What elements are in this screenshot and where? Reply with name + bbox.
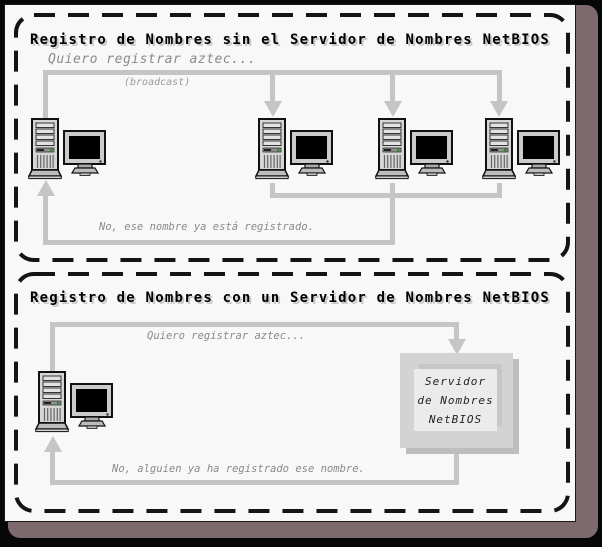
top-panel-title: Registro de Nombres sin el Servidor de N… (14, 31, 566, 49)
send-vertical-bottom (50, 322, 55, 375)
bottom-request-message: Quiero registrar aztec... (147, 330, 305, 342)
arrowhead-down-2 (384, 101, 402, 117)
broadcast-label: (broadcast) (124, 77, 190, 88)
server-label-line3: NetBIOS (429, 410, 482, 429)
computer-icon (375, 117, 455, 187)
flow-line-send-vertical-left (43, 70, 48, 122)
flow-line-drop-2 (390, 75, 395, 101)
computer-icon (255, 117, 335, 187)
computer-icon (482, 117, 562, 187)
reply-drop-vertical (390, 198, 395, 242)
reply-return-vertical (43, 196, 48, 245)
send-horizontal-bottom (50, 322, 459, 327)
reply-return-horizontal (43, 240, 395, 245)
send-drop-to-server (454, 327, 459, 339)
server-label-line2: de Nombres (417, 391, 493, 410)
arrowhead-down-1 (264, 101, 282, 117)
reply-connector-horizontal (270, 193, 502, 198)
top-reply-message: No, ese nombre ya está registrado. (99, 221, 314, 233)
bottom-reply-message: No, alguien ya ha registrado ese nombre. (112, 463, 365, 475)
server-box-label: Servidor de Nombres NetBIOS (414, 369, 497, 431)
server-reply-up-vertical (50, 452, 55, 480)
diagram-canvas: Registro de Nombres sin el Servidor de N… (0, 0, 602, 547)
computer-icon (35, 370, 115, 440)
flow-line-drop-3 (497, 75, 502, 101)
server-reply-horizontal (50, 480, 459, 485)
arrowhead-down-3 (490, 101, 508, 117)
flow-line-drop-1 (270, 75, 275, 101)
server-label-line1: Servidor (425, 372, 486, 391)
computer-icon (28, 117, 108, 187)
top-request-message: Quiero registrar aztec... (48, 52, 256, 67)
bottom-panel-title: Registro de Nombres con un Servidor de N… (14, 289, 566, 307)
